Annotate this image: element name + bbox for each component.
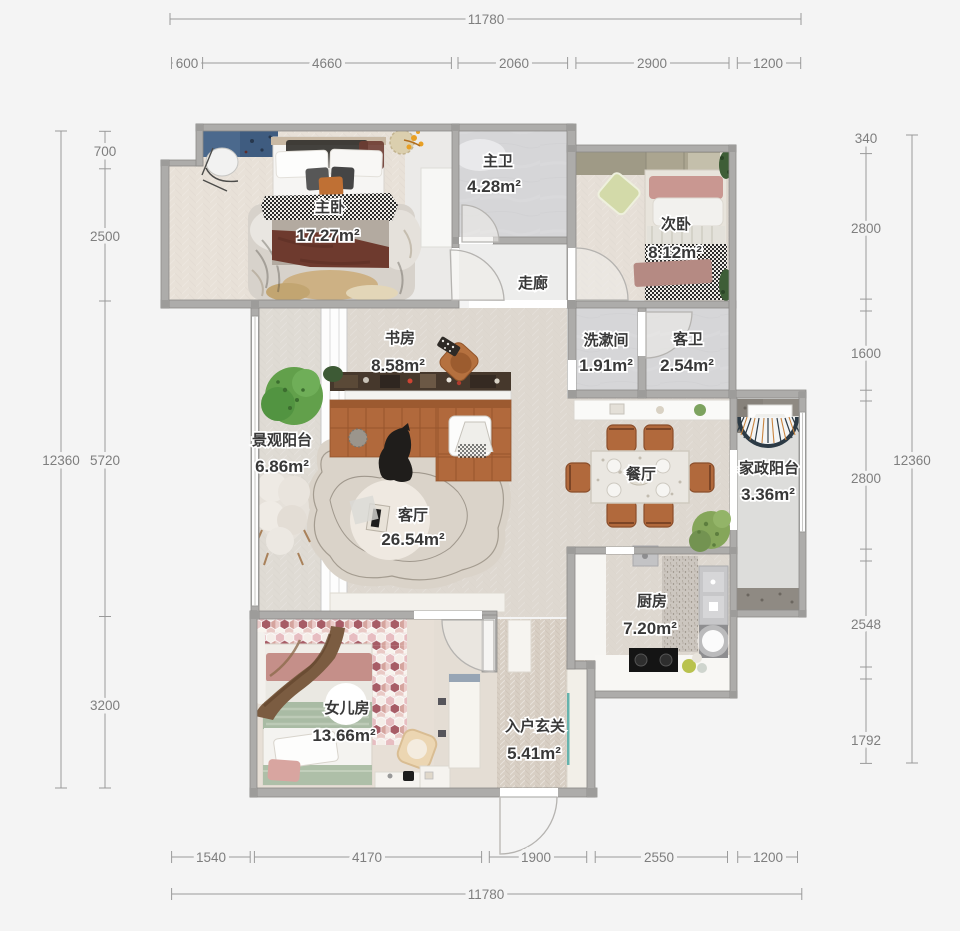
svg-text:餐厅: 餐厅	[626, 465, 656, 483]
svg-text:11780: 11780	[468, 887, 505, 902]
svg-text:1200: 1200	[753, 850, 783, 865]
svg-text:客厅: 客厅	[397, 506, 428, 524]
svg-text:13.66m²: 13.66m²	[312, 726, 376, 745]
svg-text:1200: 1200	[753, 56, 783, 71]
svg-text:2060: 2060	[499, 56, 529, 71]
svg-text:书房: 书房	[385, 329, 415, 347]
svg-text:入户玄关: 入户玄关	[505, 717, 565, 735]
svg-text:洗漱间: 洗漱间	[583, 331, 628, 349]
svg-text:17.27m²: 17.27m²	[296, 226, 360, 245]
svg-text:3200: 3200	[90, 698, 120, 713]
svg-text:主卫: 主卫	[483, 152, 513, 170]
svg-text:女儿房: 女儿房	[324, 699, 369, 717]
svg-text:1792: 1792	[851, 733, 881, 748]
svg-text:次卧: 次卧	[661, 215, 691, 233]
svg-text:4.28m²: 4.28m²	[467, 177, 521, 196]
svg-text:1600: 1600	[851, 346, 881, 361]
svg-text:6.86m²: 6.86m²	[255, 457, 309, 476]
svg-text:5.41m²: 5.41m²	[507, 744, 561, 763]
svg-text:340: 340	[855, 131, 878, 146]
svg-text:2900: 2900	[637, 56, 667, 71]
svg-text:1.91m²: 1.91m²	[579, 356, 633, 375]
svg-text:12360: 12360	[42, 453, 80, 468]
svg-text:景观阳台: 景观阳台	[252, 431, 312, 449]
svg-text:3.36m²: 3.36m²	[741, 485, 795, 504]
svg-text:11780: 11780	[468, 12, 505, 27]
svg-text:8.58m²: 8.58m²	[371, 356, 425, 375]
svg-text:2548: 2548	[851, 617, 881, 632]
svg-text:客卫: 客卫	[672, 330, 703, 348]
svg-text:8.12m²: 8.12m²	[648, 243, 702, 262]
svg-text:2800: 2800	[851, 221, 881, 236]
svg-text:2500: 2500	[90, 229, 120, 244]
svg-text:1900: 1900	[521, 850, 551, 865]
svg-text:4170: 4170	[352, 850, 382, 865]
svg-text:5720: 5720	[90, 453, 120, 468]
svg-text:700: 700	[94, 144, 117, 159]
svg-text:主卧: 主卧	[315, 198, 345, 216]
svg-text:家政阳台: 家政阳台	[739, 459, 799, 477]
svg-text:12360: 12360	[893, 453, 931, 468]
svg-text:2550: 2550	[644, 850, 674, 865]
svg-text:2.54m²: 2.54m²	[660, 356, 714, 375]
svg-text:7.20m²: 7.20m²	[623, 619, 677, 638]
svg-text:走廊: 走廊	[518, 274, 548, 292]
svg-text:厨房: 厨房	[637, 592, 667, 610]
svg-text:1540: 1540	[196, 850, 226, 865]
svg-text:4660: 4660	[312, 56, 342, 71]
svg-text:600: 600	[176, 56, 199, 71]
svg-text:26.54m²: 26.54m²	[381, 530, 445, 549]
svg-text:2800: 2800	[851, 471, 881, 486]
